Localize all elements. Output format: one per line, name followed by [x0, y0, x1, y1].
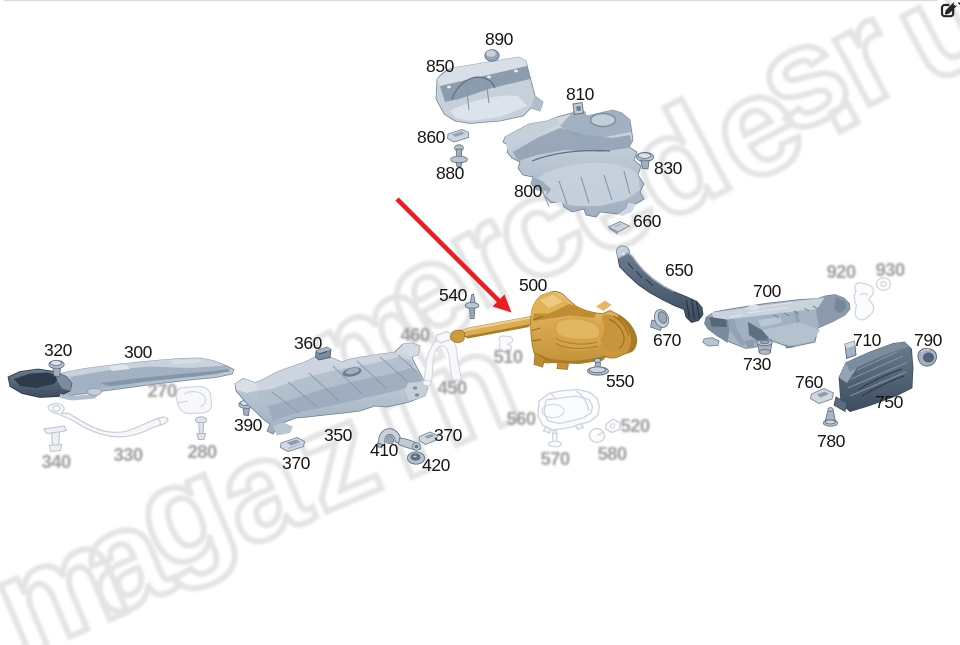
svg-text:410: 410 — [370, 440, 399, 460]
svg-text:460: 460 — [400, 324, 429, 345]
svg-text:800: 800 — [514, 181, 543, 201]
svg-text:760: 760 — [795, 372, 824, 392]
svg-text:560: 560 — [506, 408, 535, 429]
svg-text:580: 580 — [597, 443, 626, 464]
svg-text:330: 330 — [113, 444, 142, 465]
svg-text:370: 370 — [434, 425, 463, 445]
svg-text:750: 750 — [875, 392, 904, 412]
svg-text:730: 730 — [743, 354, 772, 374]
svg-text:350: 350 — [324, 425, 353, 445]
svg-text:570: 570 — [540, 448, 569, 469]
svg-text:920: 920 — [826, 261, 855, 282]
svg-text:270: 270 — [147, 380, 176, 401]
svg-text:670: 670 — [653, 330, 682, 350]
svg-text:540: 540 — [439, 285, 468, 305]
svg-text:780: 780 — [817, 431, 846, 451]
svg-text:280: 280 — [187, 441, 216, 462]
svg-text:930: 930 — [875, 259, 904, 280]
svg-text:830: 830 — [654, 158, 683, 178]
svg-text:860: 860 — [417, 127, 446, 147]
svg-text:810: 810 — [566, 84, 595, 104]
svg-text:520: 520 — [620, 415, 649, 436]
svg-text:450: 450 — [437, 377, 466, 398]
svg-text:550: 550 — [606, 371, 635, 391]
svg-text:660: 660 — [633, 211, 662, 231]
svg-text:390: 390 — [234, 415, 263, 435]
svg-text:710: 710 — [853, 330, 882, 350]
svg-text:790: 790 — [914, 330, 943, 350]
svg-text:420: 420 — [422, 455, 451, 475]
svg-text:890: 890 — [485, 29, 514, 49]
svg-text:650: 650 — [665, 260, 694, 280]
svg-text:880: 880 — [436, 163, 465, 183]
svg-text:360: 360 — [294, 333, 323, 353]
svg-text:510: 510 — [493, 346, 522, 367]
svg-text:300: 300 — [124, 342, 153, 362]
svg-text:320: 320 — [44, 340, 73, 360]
svg-text:500: 500 — [519, 275, 548, 295]
svg-text:370: 370 — [282, 453, 311, 473]
svg-text:700: 700 — [753, 281, 782, 301]
svg-text:850: 850 — [426, 56, 455, 76]
svg-text:340: 340 — [41, 451, 70, 472]
